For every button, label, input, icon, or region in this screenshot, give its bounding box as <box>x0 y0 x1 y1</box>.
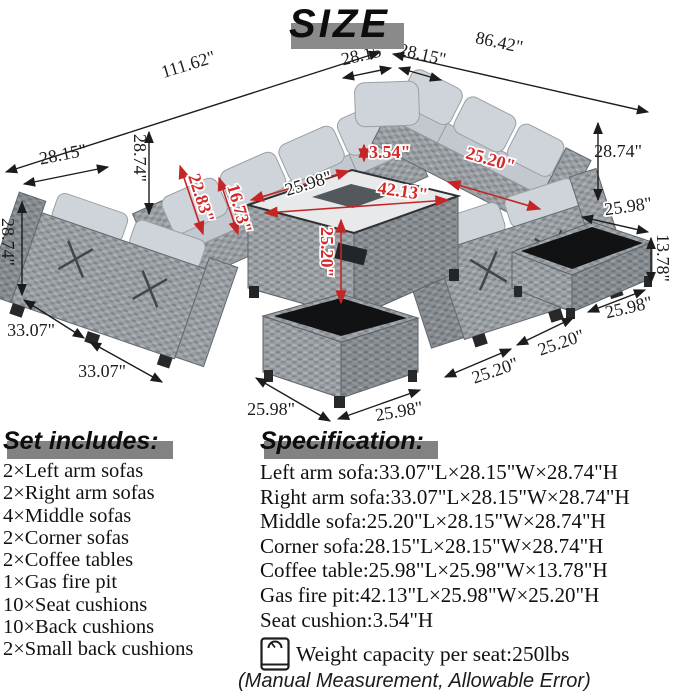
set-includes-item: 2×Corner sofas <box>3 527 243 549</box>
specification-section: Specification: Left arm sofa:33.07"L×28.… <box>260 427 678 671</box>
page-title: SIZE <box>0 2 679 47</box>
set-includes-item: 2×Left arm sofas <box>3 460 243 482</box>
weight-capacity-text: Weight capacity per seat:250lbs <box>296 642 570 667</box>
set-includes-item: 2×Right arm sofas <box>3 482 243 504</box>
spec-item: Middle sofa:25.20"L×28.15"W×28.74"H <box>260 509 678 534</box>
specification-list: Left arm sofa:33.07"L×28.15"W×28.74"H Ri… <box>260 460 678 632</box>
spec-item: Coffee table:25.98"L×25.98"W×13.78"H <box>260 558 678 583</box>
dim-ottoman-left-side: 25.98" <box>247 399 295 419</box>
dim-seat-cushion-height: 3.54" <box>369 142 411 162</box>
weight-capacity-row: Weight capacity per seat:250lbs <box>260 637 678 671</box>
set-includes-list: 2×Left arm sofas 2×Right arm sofas 4×Mid… <box>3 460 243 661</box>
set-includes-item: 2×Coffee tables <box>3 549 243 571</box>
set-includes-item: 4×Middle sofas <box>3 505 243 527</box>
coffee-table-ottoman-center <box>263 294 418 408</box>
dim-left-sofa-length-lower: 33.07" <box>78 361 126 381</box>
set-includes-item: 10×Seat cushions <box>3 594 243 616</box>
dim-sectional-left-length: 111.62" <box>159 47 218 82</box>
dim-middle-seat-front: 25.20" <box>469 353 521 387</box>
dim-ottoman-front-side: 25.98" <box>374 397 425 425</box>
set-includes-item: 10×Back cushions <box>3 616 243 638</box>
dim-firepit-height: 25.20" <box>317 227 337 278</box>
corner-back-cushion <box>354 81 419 127</box>
spec-item: Right arm sofa:33.07"L×28.15"W×28.74"H <box>260 485 678 510</box>
set-includes-section: Set includes: 2×Left arm sofas 2×Right a… <box>3 427 243 661</box>
set-includes-item: 2×Small back cushions <box>3 638 243 660</box>
weight-scale-icon <box>260 637 290 671</box>
dim-sofa-height-right: 28.74" <box>594 141 642 161</box>
dim-coffee-table-height: 13.78" <box>653 234 673 282</box>
dim-middle-seat-right: 25.20" <box>535 325 587 359</box>
spec-item: Gas fire pit:42.13"L×25.98"W×25.20"H <box>260 583 678 608</box>
spec-item: Left arm sofa:33.07"L×28.15"W×28.74"H <box>260 460 678 485</box>
dim-sofa-depth: 28.15" <box>37 140 88 169</box>
set-includes-item: 1×Gas fire pit <box>3 571 243 593</box>
size-infographic: 111.62" 28.15" 28.15" 86.42" 28.15" 28.7… <box>0 0 679 696</box>
measurement-disclaimer: (Manual Measurement, Allowable Error) <box>238 670 591 693</box>
furniture-diagram: 111.62" 28.15" 28.15" 86.42" 28.15" 28.7… <box>0 0 679 428</box>
spec-item: Corner sofa:28.15"L×28.15"W×28.74"H <box>260 534 678 559</box>
specification-heading: Specification: <box>260 427 424 456</box>
set-includes-heading: Set includes: <box>3 427 159 456</box>
dim-sofa-height-back-left: 28.74" <box>130 134 150 182</box>
dim-coffee-table-top-side: 25.98" <box>603 193 653 219</box>
dim-left-sofa-length-upper: 33.07" <box>7 320 55 340</box>
page-title-text: SIZE <box>289 2 390 46</box>
spec-item: Seat cushion:3.54"H <box>260 608 678 633</box>
dim-sofa-height-front-left: 28.74" <box>0 218 18 266</box>
